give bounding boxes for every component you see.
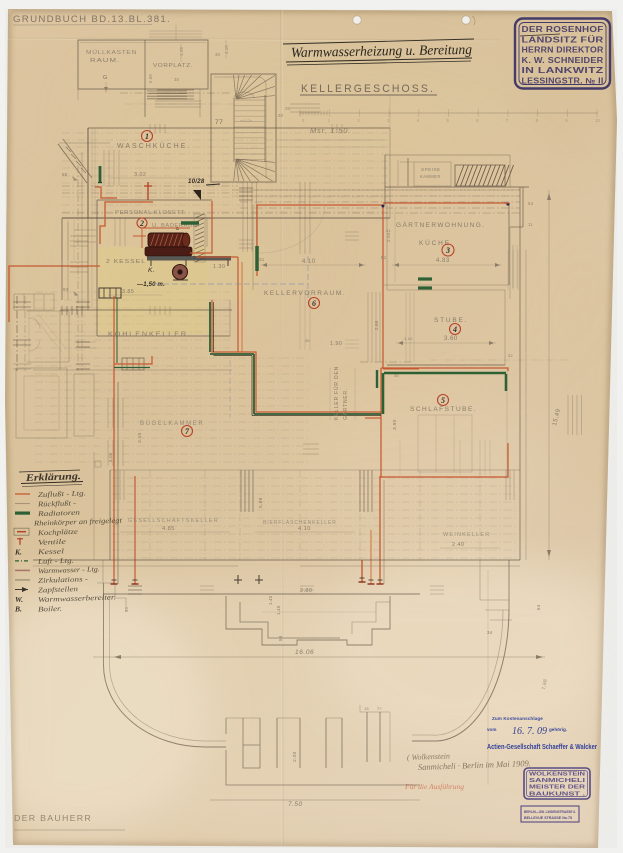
svg-text:Zum Kostenanschlage: Zum Kostenanschlage [492,716,543,721]
svg-text:KELLER FÜR DEN: KELLER FÜR DEN [333,366,340,420]
svg-text:Für die Ausführung: Für die Ausführung [404,782,464,791]
svg-text:3.45: 3.45 [137,432,143,443]
svg-text:IN LANKWITZ: IN LANKWITZ [522,66,604,75]
svg-text:1: 1 [145,132,149,141]
svg-text:gehörig.: gehörig. [549,727,567,732]
svg-text:31: 31 [386,228,391,233]
svg-text:Kochplätze: Kochplätze [37,528,79,537]
svg-text:Luft - Ltg.: Luft - Ltg. [37,557,75,566]
svg-text:38: 38 [215,52,221,57]
svg-text:4.15: 4.15 [224,45,229,54]
svg-text:11: 11 [528,222,533,227]
svg-text:GÄRTNER.: GÄRTNER. [342,388,349,420]
svg-text:35: 35 [394,373,399,378]
svg-text:×9.12×: ×9.12× [240,119,252,123]
svg-text:DER BAUHERR: DER BAUHERR [14,813,92,823]
svg-text:PERSONAL KLOSETT: PERSONAL KLOSETT [115,210,185,216]
svg-text:4.05: 4.05 [108,452,113,462]
svg-text:32: 32 [508,353,513,358]
svg-text:1.30: 1.30 [213,264,225,270]
svg-text:K.: K. [14,547,22,556]
svg-text:2.66: 2.66 [374,320,379,330]
svg-text:VORPLATZ.: VORPLATZ. [153,63,193,69]
svg-text:13: 13 [364,706,369,711]
svg-text:RAUM.: RAUM. [90,58,120,64]
svg-text:2.00: 2.00 [292,751,298,762]
svg-text:G: G [103,75,108,81]
svg-text:Radiatoren: Radiatoren [36,509,80,519]
svg-text:HERRN DIREKTOR: HERRN DIREKTOR [522,46,604,55]
svg-text:2 KESSEL: 2 KESSEL [106,259,146,265]
svg-text:1.45: 1.45 [268,595,273,605]
svg-text:Zapfstellen: Zapfstellen [38,585,79,594]
svg-text:—1,50 m.: —1,50 m. [136,282,165,288]
svg-text:K.: K. [148,267,155,274]
svg-text:MÜLLKASTEN: MÜLLKASTEN [86,49,137,56]
svg-text:GESELLSCHAFTSKELLER: GESELLSCHAFTSKELLER [128,518,219,524]
svg-text:3.60: 3.60 [444,336,458,342]
svg-text:BAUKUNST .: BAUKUNST . [529,791,586,797]
svg-text:5: 5 [441,396,445,405]
svg-text:4.10: 4.10 [302,259,316,265]
svg-text:4.85: 4.85 [162,526,175,532]
svg-text:KELLERGESCHOSS.: KELLERGESCHOSS. [301,83,435,95]
svg-text:Actien-Gesellschaft Schaeffer: Actien-Gesellschaft Schaeffer & Walcker [487,744,597,751]
svg-text:Zuflußt - Ltg.: Zuflußt - Ltg. [38,489,86,499]
svg-text:2.80: 2.80 [300,588,312,594]
svg-text:3.85: 3.85 [122,289,134,295]
svg-text:54: 54 [124,606,129,612]
svg-text:4: 4 [452,325,457,334]
svg-text:1.29: 1.29 [179,47,184,56]
svg-text:BERLIN—SW. LINDENSTRASSE 6.: BERLIN—SW. LINDENSTRASSE 6. [524,810,576,814]
svg-text:6: 6 [312,299,316,308]
svg-text:WOLKENSTEIN: WOLKENSTEIN [529,772,585,778]
svg-text:10: 10 [595,118,600,123]
svg-text:Rückflußt -: Rückflußt - [37,499,77,508]
svg-text:45: 45 [305,338,310,343]
svg-text:0.89: 0.89 [148,74,153,83]
svg-text:2.93: 2.93 [386,232,391,242]
svg-text:65: 65 [62,172,68,177]
svg-text:51: 51 [381,255,387,260]
svg-text:1.45: 1.45 [276,605,281,615]
svg-text:SPEISE: SPEISE [421,167,441,172]
svg-text:GÄRTNERWOHNUNG.: GÄRTNERWOHNUNG. [396,221,485,229]
svg-text:BÜGELKAMMER: BÜGELKAMMER [140,420,204,427]
svg-text:3.90: 3.90 [392,419,398,430]
svg-text:64: 64 [528,201,534,206]
svg-text:28: 28 [285,106,291,111]
svg-text:STUBE.: STUBE. [434,317,468,324]
svg-text:3.02: 3.02 [134,172,146,178]
svg-text:Msr. 1:50.: Msr. 1:50. [310,126,351,135]
svg-text:31: 31 [259,257,265,262]
svg-text:2.40: 2.40 [452,542,464,548]
svg-text:SANMICHELI: SANMICHELI [529,778,586,784]
svg-text:WASCHKÜCHE.: WASCHKÜCHE. [117,142,191,150]
svg-text:58: 58 [278,635,283,641]
svg-text:7.50: 7.50 [288,801,303,808]
svg-text:10/28: 10/28 [188,179,205,185]
svg-text:7?: 7? [377,706,382,711]
svg-text:KOHLENKELLER: KOHLENKELLER [108,331,188,338]
svg-text:Boiler.: Boiler. [38,605,63,614]
svg-text:LANDSITZ FÜR: LANDSITZ FÜR [522,35,604,44]
svg-text:38: 38 [278,113,284,118]
svg-text:4.83: 4.83 [436,258,450,264]
svg-text:vom: vom [487,727,496,732]
svg-text:5,88: 5,88 [258,497,264,508]
svg-text:K. W. SCHNEIDER: K. W. SCHNEIDER [522,56,604,65]
svg-text:1.90: 1.90 [330,341,342,347]
svg-text:1.10: 1.10 [404,336,413,341]
svg-text:B.: B. [14,605,22,614]
svg-text:GRUNDBUCH BD.13.BL.381.: GRUNDBUCH BD.13.BL.381. [13,14,171,24]
svg-text:LESSINGSTR. № II: LESSINGSTR. № II [522,76,604,85]
svg-text:DER ROSENHOF: DER ROSENHOF [522,25,604,34]
svg-text:4.10: 4.10 [298,526,311,532]
svg-text:3: 3 [445,246,450,255]
svg-text:77: 77 [215,119,223,126]
svg-text:KAMMER: KAMMER [420,174,441,179]
svg-text:Kessel: Kessel [36,547,64,556]
svg-text:WEINKELLER: WEINKELLER [443,532,490,538]
svg-text:SCHLAFSTUBE.: SCHLAFSTUBE. [410,406,477,413]
svg-text:38: 38 [174,77,180,82]
svg-text:64: 64 [536,604,541,610]
svg-text:MEISTER DER: MEISTER DER [529,785,585,791]
svg-text:2: 2 [139,219,144,228]
svg-text:W.: W. [15,595,23,604]
svg-text:16.06: 16.06 [295,649,314,656]
svg-text:Ventile: Ventile [38,538,67,547]
svg-text:16. 7. 09: 16. 7. 09 [512,726,547,737]
svg-text:KELLERVORRAUM.: KELLERVORRAUM. [264,290,346,297]
svg-text:a: a [176,226,179,232]
svg-text:BELLEVUE STRASSE No.75: BELLEVUE STRASSE No.75 [524,816,572,820]
